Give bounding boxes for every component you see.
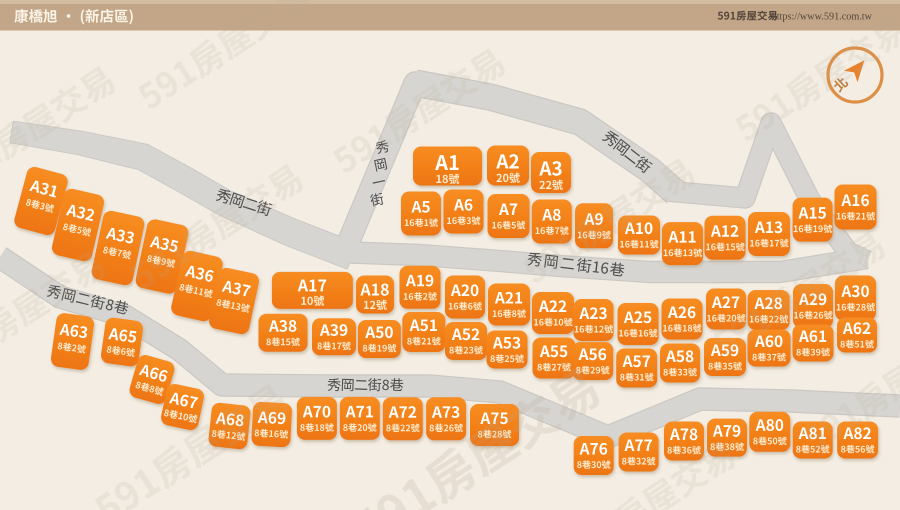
svg-text:https://www.591.com.tw: https://www.591.com.tw (772, 12, 873, 23)
